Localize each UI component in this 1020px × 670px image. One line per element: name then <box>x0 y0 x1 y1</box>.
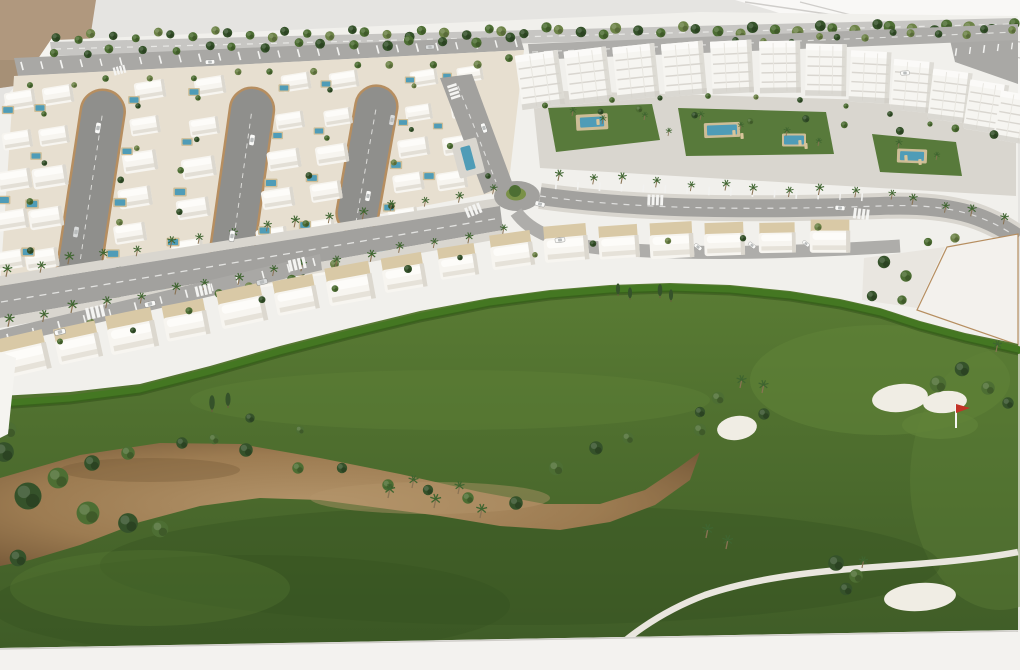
tree <box>104 44 113 53</box>
tree <box>194 137 200 143</box>
tree <box>315 39 325 49</box>
tree <box>139 46 147 54</box>
fvilla <box>704 222 746 257</box>
tree <box>438 37 447 46</box>
tree <box>86 29 95 38</box>
pool <box>113 198 127 207</box>
pool <box>181 138 192 146</box>
tree <box>77 502 100 525</box>
tree <box>935 30 943 38</box>
tree <box>109 32 118 41</box>
tree <box>713 26 724 37</box>
garden-pool-3 <box>782 134 806 147</box>
block <box>710 40 754 95</box>
tree <box>990 130 999 139</box>
tree <box>74 36 82 44</box>
tree <box>887 111 893 117</box>
tree <box>907 29 915 37</box>
roundabout-bush <box>509 185 521 197</box>
tree <box>1002 397 1013 408</box>
tree <box>747 118 753 124</box>
block <box>848 50 891 104</box>
block <box>564 46 613 105</box>
tree <box>348 25 357 34</box>
car <box>835 205 845 210</box>
tree <box>223 28 232 37</box>
pool <box>106 249 120 258</box>
tree <box>306 172 313 179</box>
tree <box>657 95 662 100</box>
lounger <box>732 130 736 136</box>
pool <box>278 84 289 91</box>
tree <box>740 235 746 241</box>
tree <box>382 30 391 39</box>
tree <box>505 54 513 62</box>
tree <box>843 103 848 108</box>
tree <box>303 29 311 37</box>
fvilla <box>436 243 479 280</box>
tree <box>360 27 370 37</box>
pool <box>258 226 271 235</box>
pool <box>423 172 435 180</box>
tree <box>391 159 397 165</box>
lounger <box>798 140 802 146</box>
tree <box>840 583 852 595</box>
tree <box>816 33 823 40</box>
tree <box>27 247 34 254</box>
tree <box>188 32 197 41</box>
pool <box>34 104 46 112</box>
architectural-model-photo <box>0 0 1020 670</box>
tree <box>154 28 163 37</box>
tree <box>132 34 140 42</box>
tree <box>1008 26 1016 34</box>
tree <box>48 468 69 489</box>
tree <box>152 521 169 538</box>
tree <box>462 492 473 503</box>
tree <box>447 143 453 149</box>
fvilla <box>488 230 535 271</box>
tree <box>296 426 304 434</box>
tree <box>636 106 643 113</box>
tree <box>981 381 995 395</box>
tree <box>897 295 906 304</box>
tree <box>665 238 671 244</box>
car <box>425 45 434 50</box>
tree <box>867 291 877 301</box>
tree <box>841 121 848 128</box>
fvilla <box>380 252 428 294</box>
tree <box>404 36 414 46</box>
tree <box>259 296 266 303</box>
fvilla <box>597 224 640 260</box>
tree <box>354 62 361 69</box>
tree <box>609 97 615 103</box>
tree <box>471 38 481 48</box>
tree <box>176 209 182 215</box>
block <box>759 41 801 94</box>
tree <box>409 127 414 132</box>
tree <box>246 31 255 40</box>
tree <box>42 160 48 166</box>
tree <box>890 29 897 36</box>
tree <box>532 252 538 258</box>
tree <box>292 462 303 473</box>
tree <box>691 24 701 34</box>
lounger <box>596 119 600 125</box>
tree <box>952 125 960 133</box>
tree <box>770 24 781 35</box>
tree <box>695 407 705 417</box>
tree <box>325 31 334 40</box>
tree <box>598 109 604 115</box>
tree <box>117 177 124 184</box>
pool <box>173 187 186 196</box>
tree <box>147 75 153 81</box>
pool <box>320 80 331 87</box>
pool <box>398 119 408 126</box>
putting-green <box>902 411 978 439</box>
tree <box>50 49 58 57</box>
tree <box>417 26 426 35</box>
lounger <box>804 143 808 149</box>
tree <box>462 30 472 40</box>
tree <box>235 68 242 75</box>
roundabout <box>494 181 540 211</box>
pool <box>2 106 14 114</box>
tree <box>239 443 253 457</box>
pool <box>272 132 283 139</box>
tree <box>295 38 304 47</box>
tree <box>209 434 219 444</box>
block <box>805 44 847 97</box>
pool <box>0 196 10 205</box>
tree <box>691 112 698 119</box>
tree <box>747 22 758 33</box>
pool <box>405 76 415 83</box>
tree <box>423 485 433 495</box>
tree <box>549 461 564 476</box>
garden-pool-4 <box>897 148 927 163</box>
tree <box>930 376 947 393</box>
tree <box>102 75 109 82</box>
tree <box>457 255 463 261</box>
tree <box>71 82 77 88</box>
tree <box>590 240 597 247</box>
tree <box>324 135 330 141</box>
tree <box>576 27 587 38</box>
pool <box>188 88 200 96</box>
tree <box>134 145 140 151</box>
tree <box>758 408 769 419</box>
pool <box>314 127 325 134</box>
lounger <box>918 159 922 165</box>
tree <box>496 26 506 36</box>
tree <box>962 31 971 40</box>
tree <box>135 103 141 109</box>
tree <box>834 34 841 41</box>
tree <box>430 61 437 68</box>
tree <box>519 29 528 38</box>
pool <box>433 123 443 130</box>
tree <box>195 95 201 101</box>
tree <box>878 256 890 268</box>
tree <box>385 61 393 69</box>
tree <box>382 41 393 52</box>
tree <box>404 265 412 273</box>
tree <box>849 569 863 583</box>
tree <box>797 97 803 103</box>
tree <box>815 20 826 31</box>
tree <box>599 29 609 39</box>
tree <box>485 173 491 179</box>
tree <box>121 446 135 460</box>
tree <box>349 40 358 49</box>
tree <box>245 413 254 422</box>
tree <box>191 75 197 81</box>
tree <box>337 463 347 473</box>
golf-fairway-light <box>190 370 710 430</box>
car <box>205 60 215 65</box>
tree <box>206 41 215 50</box>
tree <box>268 33 278 43</box>
tree <box>57 338 63 344</box>
fvilla <box>758 222 795 253</box>
tree <box>27 198 34 205</box>
tree <box>27 82 33 88</box>
tree <box>712 392 724 404</box>
tree <box>10 550 27 567</box>
tree <box>924 238 932 246</box>
pool <box>121 147 133 155</box>
tree <box>116 219 123 226</box>
car <box>900 71 909 76</box>
tree <box>130 327 136 333</box>
tree <box>900 270 911 281</box>
tree <box>589 441 603 455</box>
lounger <box>740 133 744 139</box>
tree <box>185 307 192 314</box>
tree <box>828 555 844 571</box>
tree <box>310 68 317 75</box>
tree <box>980 25 988 33</box>
block <box>612 43 660 101</box>
tree <box>633 25 643 35</box>
pool <box>265 179 278 188</box>
tree <box>302 220 309 227</box>
tree <box>332 285 339 292</box>
tree <box>84 455 100 471</box>
tree <box>610 23 621 34</box>
lounger <box>904 155 908 161</box>
golf-mound-light <box>10 550 290 626</box>
tree <box>505 33 515 43</box>
tree <box>955 362 970 377</box>
tree <box>473 60 481 68</box>
tree <box>211 26 220 35</box>
tree <box>541 22 551 32</box>
tree <box>84 50 92 58</box>
tree <box>52 33 61 42</box>
tree <box>173 47 181 55</box>
tree <box>176 437 187 448</box>
tree <box>261 43 270 52</box>
tree <box>814 223 821 230</box>
tree <box>872 19 882 29</box>
tree <box>41 111 47 117</box>
tree <box>622 432 633 443</box>
tree <box>266 68 272 74</box>
tree <box>509 496 523 510</box>
tree <box>802 115 809 122</box>
tree <box>705 93 711 99</box>
tree <box>327 87 333 93</box>
tree <box>227 43 235 51</box>
tree <box>896 127 904 135</box>
tree <box>678 21 689 32</box>
tree <box>694 424 706 436</box>
pool <box>30 152 42 160</box>
tree <box>950 233 959 242</box>
block <box>661 41 707 98</box>
block <box>890 59 934 113</box>
tree <box>861 34 868 41</box>
tree <box>14 482 41 509</box>
pool <box>128 96 140 104</box>
tree <box>166 30 174 38</box>
garden-pool-1 <box>576 113 609 131</box>
fvilla <box>649 221 695 259</box>
tree <box>280 27 289 36</box>
block <box>515 50 565 110</box>
tree <box>177 167 184 174</box>
tree <box>927 121 932 126</box>
tree <box>554 25 564 35</box>
tree <box>542 102 548 108</box>
tree <box>485 25 494 34</box>
fvilla <box>542 223 589 263</box>
tree <box>118 513 138 533</box>
tree <box>439 28 449 38</box>
tree <box>753 94 758 99</box>
tree <box>412 83 417 88</box>
tree <box>656 28 665 37</box>
